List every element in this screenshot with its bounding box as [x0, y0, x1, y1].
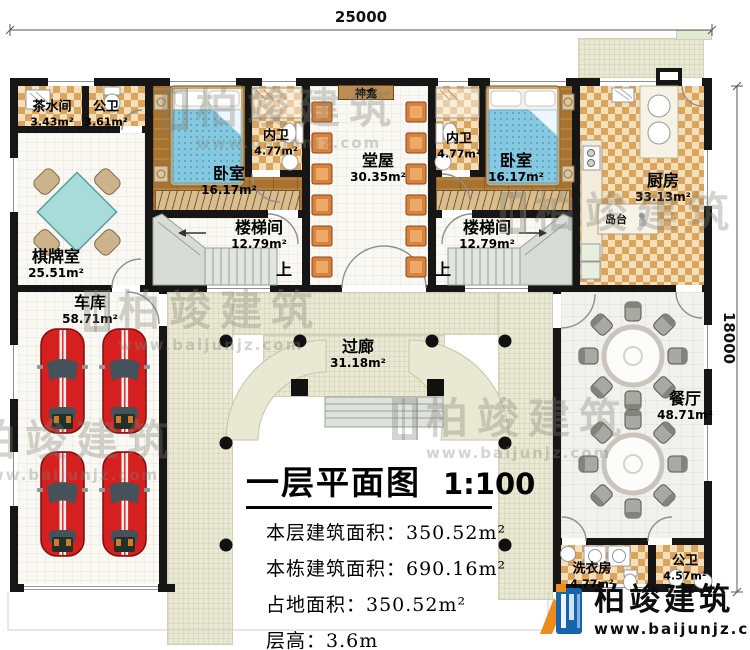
label-up-right: 上	[435, 256, 451, 280]
watermark: 柏竣建筑www.baijunjz.com	[0, 420, 178, 484]
title-rule	[246, 506, 492, 509]
watermark-logo-icon	[500, 192, 526, 234]
brand-logo: 柏竣建筑 www.baijunjz.com	[536, 584, 750, 638]
dimension-top: 25000	[335, 8, 387, 26]
stat-footprint-area: 占地面积：350.52m²	[266, 590, 535, 617]
brand-name: 柏竣建筑	[594, 585, 750, 616]
label-main-hall: 堂屋30.35m²	[350, 151, 406, 185]
watermark: 柏竣建筑www.baijunjz.com	[84, 290, 322, 354]
label-bedroom-right: 卧室16.17m²	[488, 151, 544, 185]
label-bath-bottom: 公卫4.57m²	[663, 554, 706, 583]
stat-floor-height: 层高：3.6m	[266, 626, 535, 650]
label-dining: 餐厅48.71m²	[657, 389, 713, 423]
label-tea-room: 茶水间3.43m²	[30, 100, 73, 129]
title-block: 一层平面图1:100 本层建筑面积：350.52m² 本栋建筑面积：690.16…	[246, 456, 535, 650]
watermark: 柏竣建筑www.baijunjz.com	[162, 88, 400, 152]
label-chess-room: 棋牌室25.51m²	[28, 247, 84, 281]
watermark: 柏竣建筑	[500, 192, 738, 234]
label-bath-top: 公卫3.61m²	[84, 100, 127, 129]
label-inner-bath-right: 内卫4.77m²	[437, 132, 480, 161]
label-bedroom-left: 卧室16.17m²	[201, 164, 257, 198]
watermark: 柏竣建筑www.baijunjz.com	[392, 398, 630, 462]
watermark-logo-icon	[84, 290, 110, 332]
page-title: 一层平面图1:100	[246, 456, 535, 504]
brand-icon	[536, 584, 586, 638]
label-up-left: 上	[276, 256, 292, 280]
brand-url: www.baijunjz.com	[594, 620, 750, 638]
dimension-right: 18000	[720, 312, 738, 364]
label-corridor: 过廊31.18m²	[330, 337, 386, 371]
watermark-logo-icon	[392, 398, 418, 440]
floor-plan: 神龛 茶水间3.43m² 公卫3.61m² 棋牌室25.51m² 卧室16.17…	[0, 0, 750, 650]
scale: 1:100	[443, 467, 535, 501]
stat-building-area: 本栋建筑面积：690.16m²	[266, 554, 535, 581]
stat-floor-area: 本层建筑面积：350.52m²	[266, 518, 535, 545]
watermark-logo-icon	[162, 88, 188, 130]
label-stair-left: 楼梯间12.79m²	[231, 218, 287, 252]
